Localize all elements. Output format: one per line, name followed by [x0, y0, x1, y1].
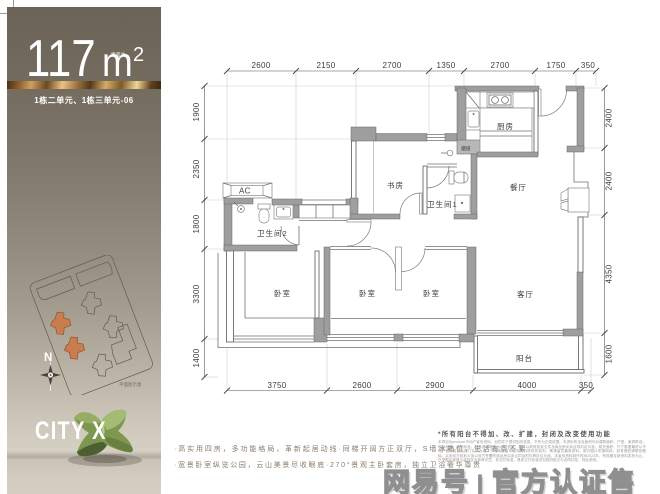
svg-text:阳台: 阳台 [516, 353, 533, 363]
svg-text:2600: 2600 [353, 381, 372, 390]
svg-text:1400: 1400 [192, 348, 201, 367]
svg-text:卧室: 卧室 [274, 288, 291, 298]
svg-text:350: 350 [581, 61, 595, 70]
svg-text:客厅: 客厅 [517, 289, 534, 299]
svg-text:卫生间1: 卫生间1 [427, 199, 458, 209]
svg-text:AC: AC [239, 187, 251, 196]
svg-text:1800: 1800 [192, 214, 201, 233]
svg-text:2350: 2350 [192, 159, 201, 178]
svg-text:2700: 2700 [491, 61, 510, 70]
svg-text:1600: 1600 [605, 344, 614, 363]
svg-text:2900: 2900 [426, 381, 445, 390]
svg-text:4350: 4350 [605, 264, 614, 283]
svg-text:卧室: 卧室 [423, 288, 440, 298]
svg-text:1350: 1350 [437, 61, 456, 70]
svg-text:1750: 1750 [547, 61, 566, 70]
svg-text:餐厅: 餐厅 [510, 183, 527, 192]
svg-text:2700: 2700 [383, 61, 402, 70]
svg-text:2400: 2400 [605, 171, 614, 190]
svg-text:厨房: 厨房 [497, 121, 514, 131]
svg-text:书房: 书房 [387, 180, 404, 190]
svg-text:3750: 3750 [268, 381, 287, 390]
svg-text:卫生间2: 卫生间2 [257, 228, 288, 238]
svg-text:4000: 4000 [518, 381, 537, 390]
svg-text:3300: 3300 [192, 284, 201, 303]
svg-text:烟道: 烟道 [461, 145, 471, 152]
svg-text:卧室: 卧室 [359, 288, 376, 298]
svg-text:350: 350 [579, 381, 593, 390]
svg-text:2400: 2400 [605, 108, 614, 127]
svg-text:1900: 1900 [192, 102, 201, 121]
svg-text:2600: 2600 [252, 61, 271, 70]
svg-text:2150: 2150 [317, 61, 336, 70]
